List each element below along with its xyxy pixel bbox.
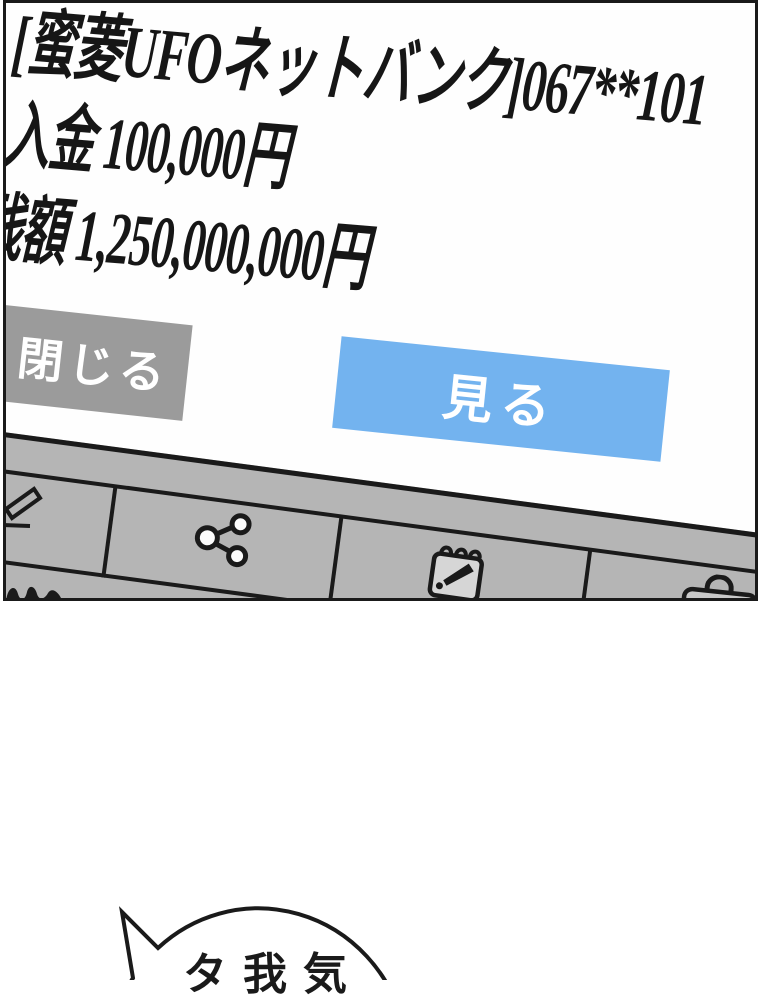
notification-deposit-line: 入金 100,000円 [3,93,292,204]
notification-area: [蜜菱UFOネットバンク]067**101 入金 100,000円 残額 1,2… [6,0,758,99]
pencil-icon[interactable] [3,477,50,536]
toolbar-divider [101,486,117,578]
comic-panel: [蜜菱UFOネットバンク]067**101 入金 100,000円 残額 1,2… [3,0,758,601]
notification-balance-line: 残額 1,250,000,000円 [3,185,371,305]
close-button[interactable]: 閉じる [3,305,193,421]
toolbar-row-bottom-line [3,553,758,601]
speech-bubble-text: タ我気 [183,938,363,1002]
notepad-icon[interactable] [420,539,492,601]
view-button[interactable]: 見る [332,336,670,461]
scribble-decoration [6,579,96,601]
share-icon[interactable] [188,504,259,579]
toolbar-divider [327,516,343,601]
view-button-label: 見る [440,357,563,441]
toolbar-divider [576,549,592,601]
close-button-label: 閉じる [14,322,173,404]
toolbar-top-strip-line [3,464,758,601]
